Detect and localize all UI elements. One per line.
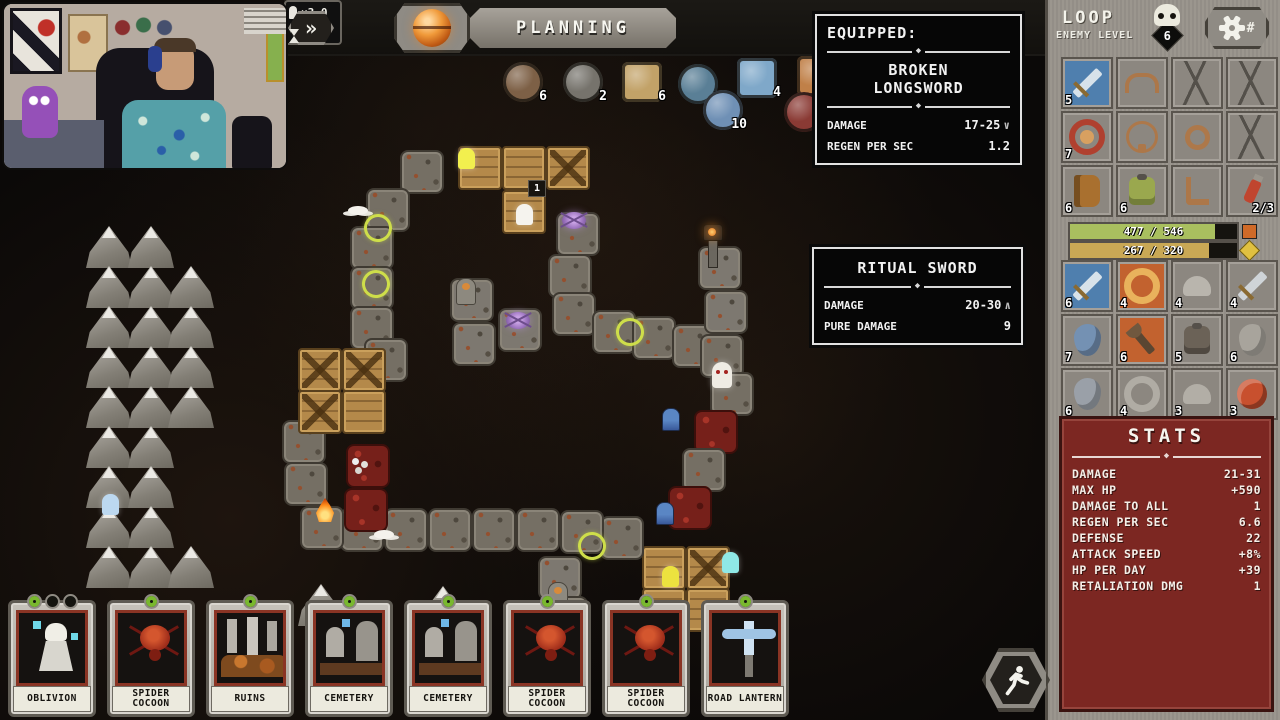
enemy-spider <box>506 312 530 329</box>
stat-row: REGEN PER SEC1.2 <box>827 139 1010 153</box>
shield-icon <box>1074 378 1101 410</box>
loot-item-shield[interactable]: 7 <box>1061 314 1113 366</box>
item-level: 6 <box>1120 350 1127 364</box>
ring-icon <box>1124 268 1160 304</box>
hash-icon: # <box>1247 21 1255 36</box>
enemy-watcher <box>662 408 680 431</box>
pillar <box>247 617 258 655</box>
card-name: SPIDER COCOON <box>508 686 586 712</box>
card-gems <box>407 594 489 609</box>
map-tile-m <box>128 506 174 548</box>
spider-head <box>545 649 557 661</box>
hp-bar: 477 / 546 <box>1068 222 1239 241</box>
card-art-cemetery <box>313 610 385 686</box>
item-level: 4 <box>1120 404 1127 418</box>
enemy-vampire <box>712 362 732 388</box>
loot-item-roundshield[interactable]: 3 <box>1226 368 1278 420</box>
equipment-slot-cracked[interactable] <box>1171 57 1223 109</box>
resource-count: 2 <box>599 89 607 104</box>
item-level: 6 <box>1065 404 1072 418</box>
map-tile-m <box>128 346 174 388</box>
equipment-slot-boot[interactable] <box>1171 165 1223 217</box>
road-lantern <box>702 224 722 266</box>
phase-banner: PLANNING <box>470 8 676 48</box>
webcam-poster-bw <box>10 8 62 74</box>
card-art-spider <box>610 610 682 686</box>
card-gem-icon <box>27 594 42 609</box>
item-level: 2/3 <box>1252 201 1274 215</box>
statue <box>456 278 476 305</box>
resource-count: 6 <box>658 89 666 104</box>
enemy-ghost-white <box>516 204 533 225</box>
map-tile-m <box>86 426 132 468</box>
card-art-spider <box>115 610 187 686</box>
equipment-slot-necklace[interactable] <box>1116 111 1168 163</box>
resource-count: 6 <box>539 89 547 104</box>
item-level: 6 <box>1065 201 1072 215</box>
stats-label: MAX HP <box>1072 482 1117 498</box>
map-tile-b[interactable] <box>346 444 390 488</box>
equipment-slot-helmet[interactable] <box>1116 57 1168 109</box>
loop-hero-game-screen: { "ornament": "◆", "webcam": {"label": "… <box>0 0 1280 720</box>
rubble <box>221 655 286 677</box>
stats-label: REGEN PER SEC <box>1072 514 1169 530</box>
stats-row: RETALIATION DMG1 <box>1072 578 1261 594</box>
map-tile-c[interactable] <box>298 348 342 392</box>
stat-value: 20-30∧ <box>965 298 1011 312</box>
stats-row: DAMAGE21-31 <box>1072 466 1261 482</box>
card-art-spider <box>511 610 583 686</box>
stat-row: DAMAGE17-25∨ <box>827 118 1010 132</box>
ring-icon <box>1124 376 1160 412</box>
helmet-icon <box>1183 384 1211 404</box>
resource-counter-planet: 4 <box>737 58 777 98</box>
map-tile-c[interactable] <box>546 146 590 190</box>
map-tile-p[interactable] <box>428 508 472 552</box>
map-tile-m <box>168 266 214 308</box>
card-name: OBLIVION <box>13 686 91 712</box>
spider-head <box>149 649 161 661</box>
stat-change-arrow: ∧ <box>1004 299 1011 312</box>
map-tile-m <box>86 546 132 588</box>
lantern-wings <box>722 629 776 639</box>
map-tile-p[interactable] <box>384 508 428 552</box>
map-tile-m <box>128 266 174 308</box>
map-tile-m <box>168 346 214 388</box>
tombstone <box>425 627 443 657</box>
stat-row: DAMAGE20-30∧ <box>824 298 1011 312</box>
card-art-ruins <box>214 610 286 686</box>
webcam-overlay <box>2 2 288 170</box>
equipped-stat-rows: DAMAGE17-25∨REGEN PER SEC1.2 <box>827 118 1010 153</box>
tombstone <box>326 627 344 657</box>
necklace-ghost-icon <box>1126 121 1158 153</box>
card-name: SPIDER COCOON <box>112 686 190 712</box>
equipment-slot-potion[interactable]: 2/3 <box>1226 165 1278 217</box>
pillar <box>267 621 277 651</box>
divider-ornament: ◆ <box>827 47 1010 56</box>
map-tile-p[interactable] <box>516 508 560 552</box>
stat-value: 9 <box>1004 319 1011 333</box>
card-gem-icon <box>342 594 357 609</box>
item-level: 5 <box>1065 93 1072 107</box>
card-gem-icon <box>243 594 258 609</box>
card-spider-cocoon[interactable]: SPIDER COCOON <box>503 600 591 717</box>
sparkle <box>441 619 449 627</box>
stats-value: 1 <box>1254 498 1261 514</box>
stats-value: +39 <box>1239 562 1261 578</box>
tombstone <box>455 621 477 661</box>
map-tile-g[interactable] <box>452 322 496 366</box>
sword-icon <box>1072 68 1102 98</box>
enemy-watcher <box>656 502 674 525</box>
card-gem-icon <box>45 594 60 609</box>
stats-label: DAMAGE TO ALL <box>1072 498 1169 514</box>
map-tile-m <box>128 226 174 268</box>
map-tile-b[interactable] <box>668 486 712 530</box>
stat-value: 17-25∨ <box>964 118 1010 132</box>
divider-ornament: ◆ <box>824 282 1011 291</box>
book-icon <box>1074 175 1100 207</box>
stat-label: PURE DAMAGE <box>824 320 897 333</box>
stats-rows: DAMAGE21-31MAX HP+590DAMAGE TO ALL1REGEN… <box>1072 466 1261 594</box>
divider-ornament: ◆ <box>1072 452 1261 461</box>
loop-title: LOOP <box>1062 8 1115 28</box>
blood-pile <box>352 458 359 465</box>
stats-value: +590 <box>1231 482 1261 498</box>
armor-icon <box>1129 177 1155 205</box>
enemy-ghost-cyan <box>722 552 739 573</box>
boot-ghost-icon <box>1186 177 1209 205</box>
card-spider-cocoon[interactable]: SPIDER COCOON <box>602 600 690 717</box>
hp-bar-icon <box>1242 224 1257 239</box>
card-art-lantern <box>709 610 781 686</box>
sidebar: LOOP ENEMY LEVEL 6 # 57662/3 477 / 546 2… <box>1045 0 1280 720</box>
equipment-slot-cracked[interactable] <box>1226 57 1278 109</box>
webcam-mic <box>232 116 272 170</box>
map-tile-c[interactable] <box>342 348 386 392</box>
hp-bar-value: 477 / 546 <box>1070 225 1237 238</box>
map-tile-m <box>168 546 214 588</box>
map-tile-b[interactable] <box>344 488 388 532</box>
map-tile-c[interactable] <box>298 390 342 434</box>
gear-icon <box>1220 16 1244 40</box>
lantern-head <box>703 224 723 241</box>
map-tile-m <box>86 346 132 388</box>
stats-label: RETALIATION DMG <box>1072 578 1183 594</box>
stats-value: 21-31 <box>1224 466 1261 482</box>
map-tile-m <box>128 546 174 588</box>
ring-ghost-icon <box>1185 125 1210 150</box>
xp-bar: 267 / 320 <box>1068 241 1239 260</box>
card-gems <box>209 594 291 609</box>
stats-title: STATS <box>1072 425 1261 447</box>
item-level: 6 <box>1230 350 1237 364</box>
loot-item-sword[interactable]: 6 <box>1061 260 1113 312</box>
equipped-item-name: BROKEN LONGSWORD <box>854 61 984 97</box>
enemy-level-label: ENEMY LEVEL <box>1056 30 1133 41</box>
card-gem-icon <box>639 594 654 609</box>
shield-icon <box>1239 324 1266 356</box>
map-tile-m <box>168 306 214 348</box>
stat-value: 1.2 <box>988 139 1010 153</box>
map-tile-p[interactable] <box>284 462 328 506</box>
loot-item-shield[interactable]: 6 <box>1061 368 1113 420</box>
loot-item-ring[interactable]: 4 <box>1116 368 1168 420</box>
resource-count: 10 <box>731 117 747 132</box>
card-gems <box>11 594 93 609</box>
map-tile-p[interactable] <box>472 508 516 552</box>
amulet-icon <box>1069 119 1105 155</box>
stats-row: DEFENSE22 <box>1072 530 1261 546</box>
pillar <box>227 619 237 653</box>
resource-counter-sand: 6 <box>622 62 662 102</box>
card-gem-icon <box>63 594 78 609</box>
armor-icon <box>1184 326 1210 354</box>
resource-count: 4 <box>773 85 781 100</box>
map-tile-m <box>128 306 174 348</box>
settings-button[interactable]: # <box>1205 7 1269 49</box>
map-tile-m <box>86 226 132 268</box>
tombstone <box>356 621 378 661</box>
card-gems <box>605 594 687 609</box>
equipment-slot-book[interactable]: 6 <box>1061 165 1113 217</box>
stats-row: MAX HP+590 <box>1072 482 1261 498</box>
resource-sand-icon <box>622 62 662 102</box>
xp-bar-value: 267 / 320 <box>1070 244 1237 257</box>
streamer-body <box>122 100 226 170</box>
skull-icon <box>1154 4 1180 26</box>
hourglass-icon <box>289 29 299 36</box>
map-tile-m <box>128 386 174 428</box>
stats-value: +8% <box>1239 546 1261 562</box>
equipment-slot-ring[interactable] <box>1171 111 1223 163</box>
planet-orb-icon <box>413 9 451 47</box>
stat-label: REGEN PER SEC <box>827 140 913 153</box>
sword-icon <box>1237 271 1267 301</box>
tooltip-title: EQUIPPED: <box>827 24 1010 42</box>
webcam-shelf-plushes <box>112 12 182 38</box>
card-cemetery[interactable]: CEMETERY <box>404 600 492 717</box>
tile-counter: 1 <box>528 180 546 197</box>
card-name: RUINS <box>211 686 289 712</box>
map-tile-p[interactable] <box>400 150 444 194</box>
stat-row: PURE DAMAGE9 <box>824 319 1011 333</box>
item-level: 3 <box>1230 404 1237 418</box>
enemy-ghost-blue <box>102 494 119 515</box>
loot-item-helmet[interactable]: 3 <box>1171 368 1223 420</box>
card-road-lantern[interactable]: ROAD LANTERN <box>701 600 789 717</box>
stats-label: HP PER DAY <box>1072 562 1146 578</box>
card-gems <box>506 594 588 609</box>
spider-head <box>644 649 656 661</box>
equipment-slot-sword[interactable]: 5 <box>1061 57 1113 109</box>
ground <box>320 663 385 675</box>
loot-item-armor[interactable]: 5 <box>1171 314 1223 366</box>
card-spider-cocoon[interactable]: SPIDER COCOON <box>107 600 195 717</box>
stats-value: 1 <box>1254 578 1261 594</box>
spider-body <box>635 625 665 651</box>
card-cemetery[interactable]: CEMETERY <box>305 600 393 717</box>
stats-row: DAMAGE TO ALL1 <box>1072 498 1261 514</box>
item-level: 4 <box>1230 296 1237 310</box>
loot-item-shield[interactable]: 6 <box>1226 314 1278 366</box>
item-level: 6 <box>1120 201 1127 215</box>
stats-label: ATTACK SPEED <box>1072 546 1161 562</box>
map-tile-p[interactable] <box>552 292 596 336</box>
compare-stat-rows: DAMAGE20-30∧PURE DAMAGE9 <box>824 298 1011 333</box>
card-gems <box>308 594 390 609</box>
card-gem-icon <box>441 594 456 609</box>
loot-item-axe[interactable]: 6 <box>1116 314 1168 366</box>
card-name: CEMETERY <box>310 686 388 712</box>
map-tile-m <box>128 426 174 468</box>
loot-item-helmet[interactable]: 4 <box>1171 260 1223 312</box>
resource-branch-icon <box>563 62 603 102</box>
stats-panel: STATS ◆ DAMAGE21-31MAX HP+590DAMAGE TO A… <box>1059 416 1274 712</box>
card-gems <box>704 594 786 609</box>
stats-row: HP PER DAY+39 <box>1072 562 1261 578</box>
item-level: 7 <box>1065 147 1072 161</box>
card-gem-icon <box>144 594 159 609</box>
item-level: 6 <box>1065 296 1072 310</box>
webcam-plush-purple <box>22 86 58 138</box>
xp-star-icon <box>1239 240 1260 261</box>
resource-rock-icon <box>503 62 543 102</box>
item-level: 3 <box>1175 404 1182 418</box>
card-name: ROAD LANTERN <box>706 686 784 712</box>
stat-label: DAMAGE <box>827 119 867 132</box>
resource-counter-rock: 6 <box>503 62 543 102</box>
compare-item-name: RITUAL SWORD <box>824 259 1011 277</box>
stat-change-arrow: ∨ <box>1003 119 1010 132</box>
enemy-level-value: 6 <box>1164 28 1171 42</box>
item-level: 5 <box>1175 350 1182 364</box>
map-tile-m <box>168 386 214 428</box>
stat-label: DAMAGE <box>824 299 864 312</box>
skull-art <box>45 623 67 641</box>
headphones-icon <box>148 46 162 72</box>
card-name: SPIDER COCOON <box>607 686 685 712</box>
card-name: CEMETERY <box>409 686 487 712</box>
webcam-window <box>244 8 286 34</box>
enemy-bat <box>374 530 394 539</box>
shield-icon <box>1074 324 1101 356</box>
spider-body <box>536 625 566 651</box>
map-tile-w[interactable] <box>342 390 386 434</box>
stats-label: DAMAGE <box>1072 466 1117 482</box>
spider-body <box>140 625 170 651</box>
enemy-ghost-yellow <box>662 566 679 587</box>
sword-icon <box>1072 271 1102 301</box>
helmet-ghost-icon <box>1125 73 1159 93</box>
cyan-dot <box>33 621 41 629</box>
helmet-icon <box>1183 276 1211 296</box>
lantern-post <box>745 655 753 677</box>
equipment-slot-amulet[interactable]: 7 <box>1061 111 1113 163</box>
card-art-cemetery <box>412 610 484 686</box>
robe-art <box>39 641 73 671</box>
stats-label: DEFENSE <box>1072 530 1124 546</box>
roundshield-icon <box>1237 379 1267 409</box>
divider-ornament: ◆ <box>827 102 1010 111</box>
planet-orb-frame[interactable] <box>394 3 470 53</box>
loot-item-sword[interactable]: 4 <box>1226 260 1278 312</box>
sparkle <box>342 619 350 627</box>
card-art-oblivion <box>16 610 88 686</box>
item-level: 7 <box>1065 350 1072 364</box>
map-tile-m <box>86 266 132 308</box>
axe-icon <box>1129 325 1156 355</box>
stats-row: REGEN PER SEC6.6 <box>1072 514 1261 530</box>
map-tile-m <box>86 306 132 348</box>
cyan-dot <box>71 633 78 640</box>
item-compare-tooltip: RITUAL SWORD ◆ DAMAGE20-30∧PURE DAMAGE9 <box>812 247 1023 345</box>
enemy-spider <box>562 212 586 229</box>
resource-counter-branch: 2 <box>563 62 603 102</box>
item-level: 4 <box>1175 296 1182 310</box>
equipped-tooltip: EQUIPPED: ◆ BROKEN LONGSWORD ◆ DAMAGE17-… <box>815 14 1022 165</box>
equipment-slot-cracked[interactable] <box>1226 111 1278 163</box>
card-gem-icon <box>738 594 753 609</box>
map-tile-m <box>128 466 174 508</box>
equipment-slot-armor[interactable]: 6 <box>1116 165 1168 217</box>
stats-row: ATTACK SPEED+8% <box>1072 546 1261 562</box>
item-level: 4 <box>1120 296 1127 310</box>
enemy-bat <box>348 206 368 215</box>
card-ruins[interactable]: RUINS <box>206 600 294 717</box>
enemy-ghost-yellow <box>458 148 475 169</box>
map-tile-m <box>86 386 132 428</box>
resource-planet-icon <box>737 58 777 98</box>
loot-item-ring[interactable]: 4 <box>1116 260 1168 312</box>
running-man-icon <box>990 656 1042 704</box>
map-tile-p[interactable] <box>600 516 644 560</box>
resource-counter-sphere: 10 <box>703 90 743 130</box>
card-gem-icon <box>540 594 555 609</box>
card-oblivion[interactable]: OBLIVION <box>8 600 96 717</box>
stats-value: 22 <box>1246 530 1261 546</box>
map-tile-g[interactable] <box>704 290 748 334</box>
card-gems <box>110 594 192 609</box>
ground <box>419 663 484 675</box>
stats-value: 6.6 <box>1239 514 1261 530</box>
